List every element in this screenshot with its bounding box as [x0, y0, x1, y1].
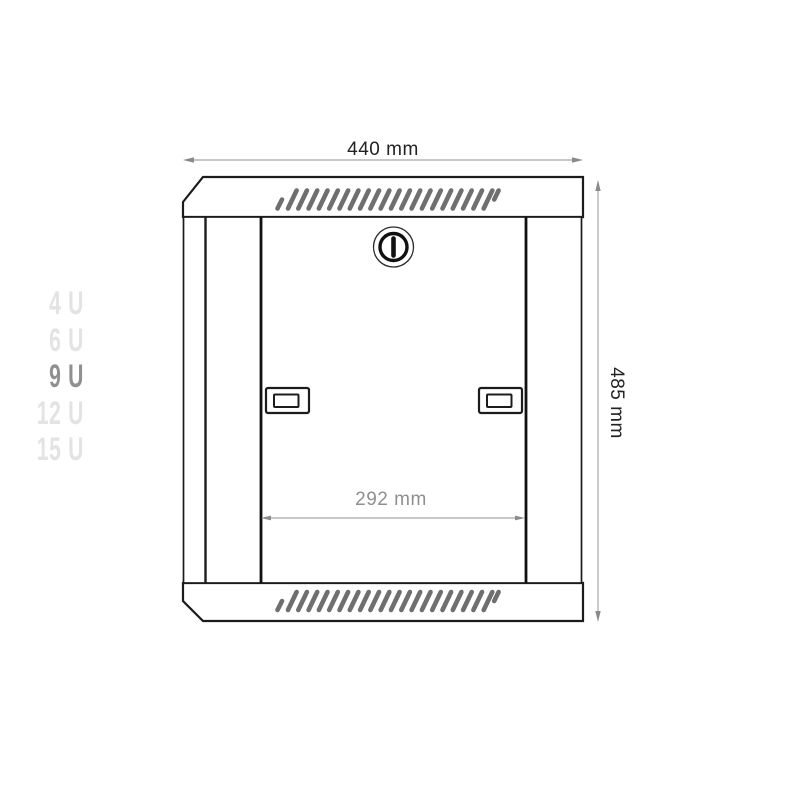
top-vent-panel — [183, 177, 583, 217]
height-dimension-arrow — [595, 180, 600, 622]
door-lock-icon — [374, 227, 414, 267]
latch-right — [479, 388, 522, 413]
unit-option-12u[interactable]: 12 U — [29, 395, 84, 432]
page: 4 U 6 U 9 U 12 U 15 U 440 mm 485 mm 292 … — [0, 0, 800, 800]
unit-size-list: 4 U 6 U 9 U 12 U 15 U — [0, 285, 84, 468]
height-dimension-label: 485 mm — [605, 333, 627, 473]
unit-option-4u[interactable]: 4 U — [29, 285, 84, 322]
cabinet-diagram — [0, 0, 800, 800]
latch-left — [266, 388, 309, 413]
unit-option-6u[interactable]: 6 U — [29, 322, 84, 359]
inner-width-dimension-label: 292 mm — [321, 489, 461, 511]
unit-option-9u[interactable]: 9 U — [29, 358, 84, 395]
width-dimension-label: 440 mm — [313, 139, 453, 161]
unit-option-15u[interactable]: 15 U — [29, 431, 84, 468]
